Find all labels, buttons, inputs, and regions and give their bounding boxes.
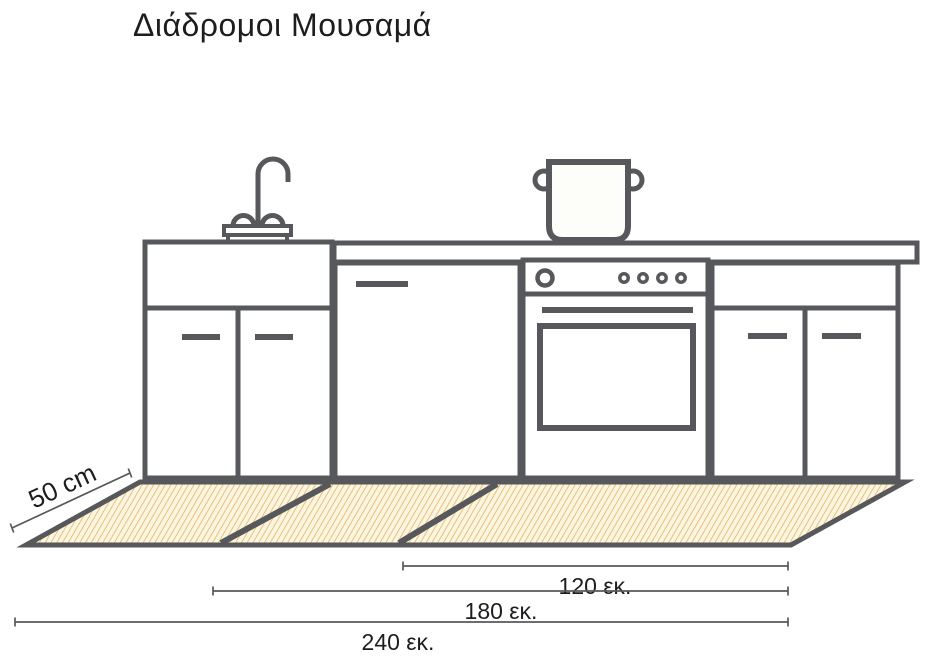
dishwasher-handle — [356, 281, 408, 287]
dimension-label-240: 240 εκ. — [362, 629, 435, 655]
door-handle — [822, 333, 861, 339]
kitchen-diagram: 50 cm 120 εκ. 180 εκ. 240 εκ. — [0, 0, 930, 660]
mat-depth-label: 50 cm — [24, 457, 101, 514]
pot-icon — [535, 162, 642, 240]
dimension-label-120: 120 εκ. — [559, 573, 632, 599]
dimension-180: 180 εκ. — [213, 587, 788, 625]
oven-knob-small — [620, 274, 628, 282]
oven — [523, 260, 708, 478]
sink-cabinet — [145, 242, 332, 478]
floor-mats — [26, 482, 905, 545]
door-handle — [255, 334, 293, 340]
faucet-icon — [224, 159, 291, 244]
door-handle — [182, 334, 220, 340]
dimension-240: 240 εκ. — [15, 618, 788, 656]
oven-knob-small — [658, 274, 666, 282]
product-diagram: Διάδρομοι Μουσαμά — [0, 0, 930, 660]
oven-knob-large — [538, 271, 553, 286]
door-handle — [748, 333, 787, 339]
right-cabinet — [712, 263, 898, 478]
oven-knob-small — [677, 274, 685, 282]
oven-window — [540, 326, 693, 428]
dimension-label-180: 180 εκ. — [465, 598, 538, 624]
oven-handle — [542, 307, 693, 313]
dishwasher — [335, 263, 520, 478]
oven-knob-small — [639, 274, 647, 282]
dimension-120: 120 εκ. — [403, 562, 788, 600]
